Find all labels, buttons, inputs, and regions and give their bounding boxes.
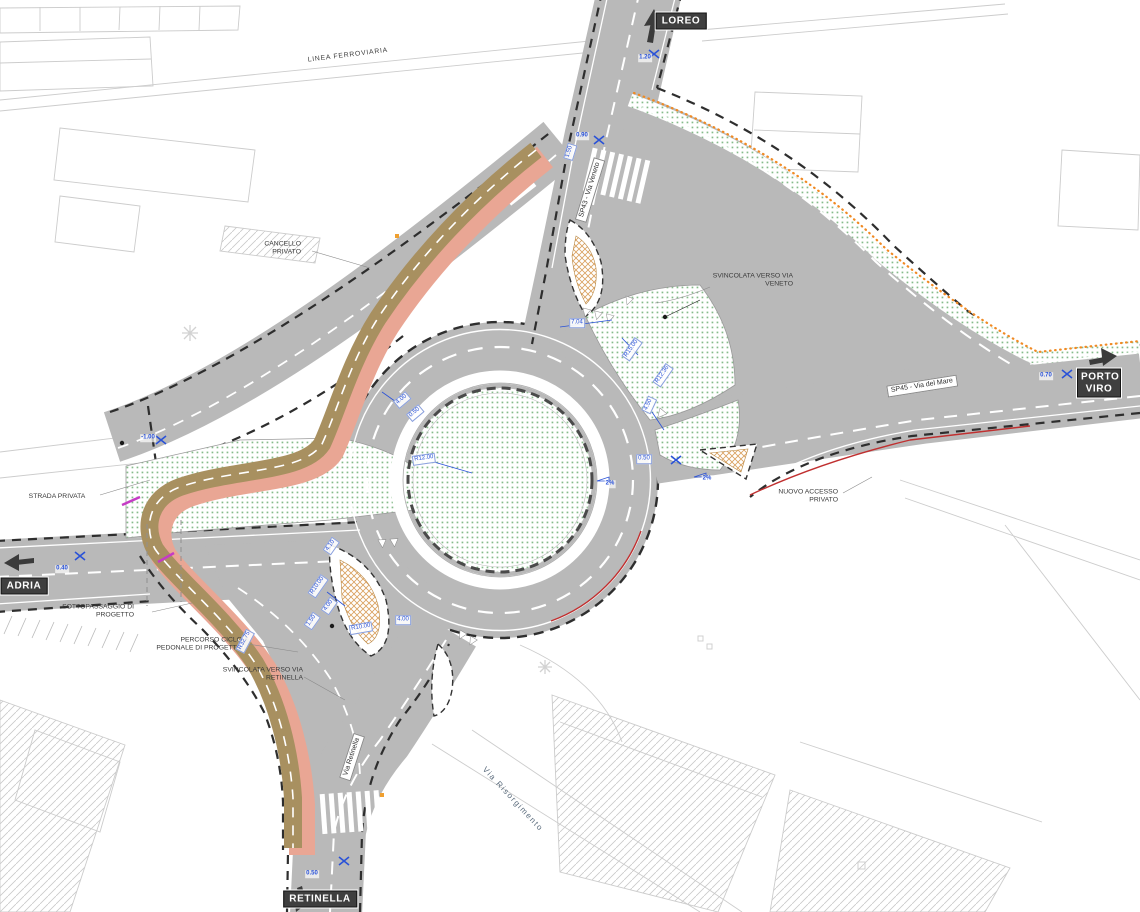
dim-label: 7.04 [569, 318, 585, 328]
annotation-new-access: NUOVO ACCESSO PRIVATO [762, 489, 838, 506]
dim-label: 0.70 [1039, 372, 1053, 380]
site-plan-drawing [0, 0, 1140, 912]
dim-label: 1.20 [638, 54, 652, 62]
dim-label: 4.00 [395, 615, 411, 625]
roundabout-site-plan: LOREO PORTO VIRO ADRIA RETINELLA SP43 - … [0, 0, 1140, 912]
dim-label: 2% [702, 475, 713, 483]
dim-label: 0.40 [55, 565, 69, 573]
annotation-ramp-retinella: SVINCOLATA VERSO VIA RETINELLA [207, 667, 303, 684]
destination-loreo: LOREO [656, 13, 707, 30]
annotation-underpass: SOTTOPASSAGGIO DI PROGETTO [56, 604, 134, 621]
destination-porto-viro: PORTO VIRO [1077, 369, 1121, 398]
dim-label: 0.90 [575, 132, 589, 140]
destination-retinella: RETINELLA [283, 891, 357, 908]
destination-adria: ADRIA [1, 578, 48, 595]
dim-label: 0.50 [636, 454, 652, 464]
annotation-gate: CANCELLO PRIVATO [249, 241, 301, 258]
dim-label: 0.50 [305, 870, 319, 878]
annotation-ramp-veneto: SVINCOLATA VERSO VIA VENETO [711, 273, 793, 290]
annotation-private-road: STRADA PRIVATA [29, 493, 86, 501]
dim-label: 2% [605, 480, 616, 488]
annotation-cycle-path: PERCORSO CICLO PEDONALE DI PROGETTO [142, 637, 242, 654]
dim-label: -1.00 [140, 434, 156, 442]
